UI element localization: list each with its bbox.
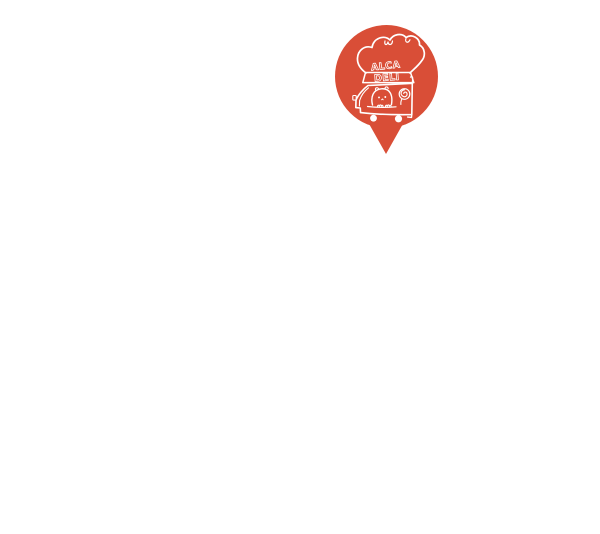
map-canvas: ALCA DELI bbox=[0, 0, 600, 534]
bear-eye-left bbox=[378, 96, 380, 98]
alca-deli-map-pin[interactable]: ALCA DELI bbox=[335, 25, 438, 155]
wheel-left-icon bbox=[370, 115, 377, 122]
logo-text-line2: DELI bbox=[374, 72, 400, 85]
wheel-right-icon bbox=[395, 115, 402, 122]
bear-eye-right bbox=[384, 96, 386, 98]
